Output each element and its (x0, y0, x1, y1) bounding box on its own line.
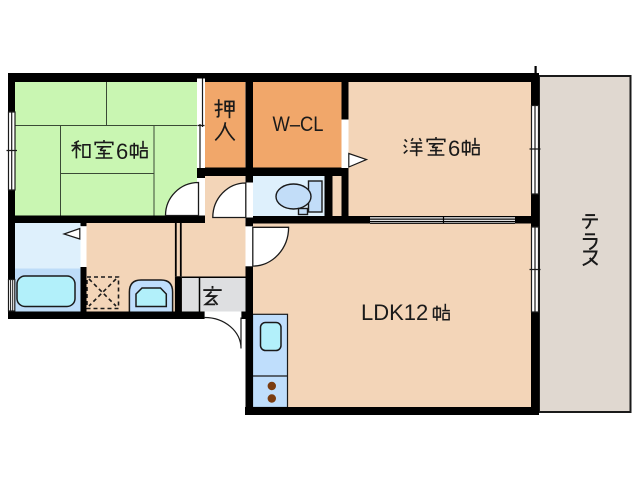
svg-text:LDK12: LDK12 (361, 300, 428, 325)
svg-text:6: 6 (448, 136, 460, 161)
svg-text:W–CL: W–CL (273, 113, 324, 136)
svg-text:6: 6 (116, 139, 128, 164)
